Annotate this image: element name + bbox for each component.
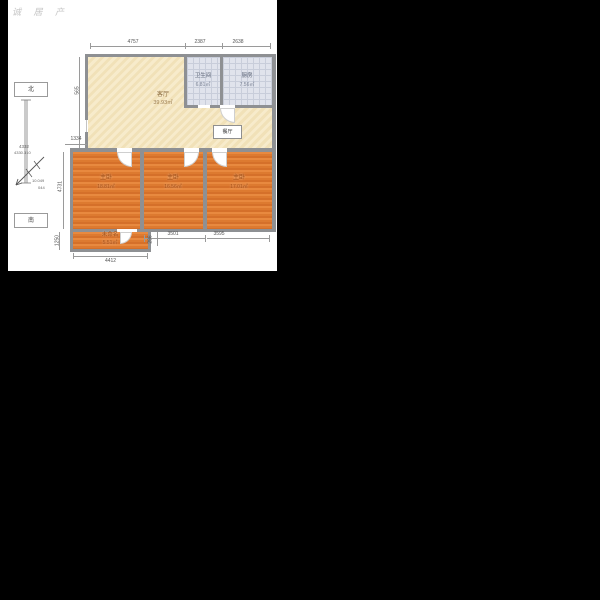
bedroom3-label: 主卧 [214,175,264,181]
dim-bottom-3501: 3501 [148,232,198,237]
dim-top-2638: 2638 [208,40,268,45]
living-room-area: 39.93㎡ [138,101,188,107]
dim-tick [205,235,206,242]
dim-line-3595 [207,238,270,239]
bathroom-label: 卫生间 [183,74,223,80]
unnamed-room-label: 未命名 [85,233,135,239]
bathroom-area: 6.81㎡ [183,83,223,88]
kitchen-area: 7.56㎡ [227,83,267,88]
dim-tick [90,43,91,49]
dining-tag-box: 餐厅 [213,125,242,139]
wall-bedrooms-left [70,148,73,252]
dim-tick [269,235,270,242]
bedroom2-area: 16.56㎡ [148,185,198,190]
dim-tick [144,235,145,242]
compass-scale-text-1: 4332 [19,144,30,149]
compass-survey-graphic: 4332 4330.310 10.049 044 [10,95,60,205]
wall-living-top [85,54,276,57]
compass-bearing-text-2: 044 [38,185,45,190]
bedroom3-area: 17.01㎡ [214,185,264,190]
dim-line-296 [157,232,158,246]
living-room-label: 客厅 [138,92,188,98]
wall-bathroom-left [184,54,187,108]
wall-bed2-bed3-divider [203,152,207,229]
compass-south-box: 南 [14,213,48,228]
compass-bearing-text-1: 10.049 [32,178,45,183]
dim-line-4412 [73,256,148,257]
wall-living-left [85,54,88,148]
wall-right [272,54,276,232]
unnamed-room-area: 5.51㎡ [85,241,135,246]
dim-left-1334: 1334 [65,137,87,142]
wall-unnamed-bottom [70,249,151,252]
dining-label: 餐厅 [222,129,232,135]
kitchen-label: 厨房 [227,74,267,80]
dim-top-4757: 4757 [103,40,163,45]
dim-tick [73,253,74,259]
wall-bedrooms-top [70,148,276,152]
dim-line-1334 [65,144,87,145]
wall-bed1-bed2-divider [140,152,144,229]
bedroom1-label: 主卧 [81,175,131,181]
living-left-window-line [86,120,87,132]
page-background: { "watermark": "诚 居 产", "compass": { "no… [0,0,600,600]
compass-north-label: 北 [28,87,34,93]
dim-line-top [90,46,270,47]
dim-left-565: 565 [76,81,81,101]
bedroom1-area: 18.81㎡ [81,185,131,190]
bedroom2-floor [144,152,203,229]
dim-bottom-4412: 4412 [88,259,133,264]
compass-scale-text-2: 4330.310 [14,150,31,155]
bathroom-floor [187,57,220,105]
bathroom-door-gap [198,105,210,108]
dim-left-1250: 1250 [56,230,61,252]
dim-bottom-296: 296 [149,230,154,250]
watermark: 诚 居 产 [12,5,69,18]
floorplan-canvas: 诚 居 产 4757 2387 2638 565 1334 4731 1250 [8,0,277,271]
bedroom2-label: 主卧 [148,175,198,181]
dim-bottom-3595: 3595 [194,232,244,237]
kitchen-floor [223,57,272,105]
dim-line-565 [79,57,80,148]
compass-south-label: 南 [28,218,34,224]
dim-tick [270,43,271,49]
dim-tick [147,253,148,259]
